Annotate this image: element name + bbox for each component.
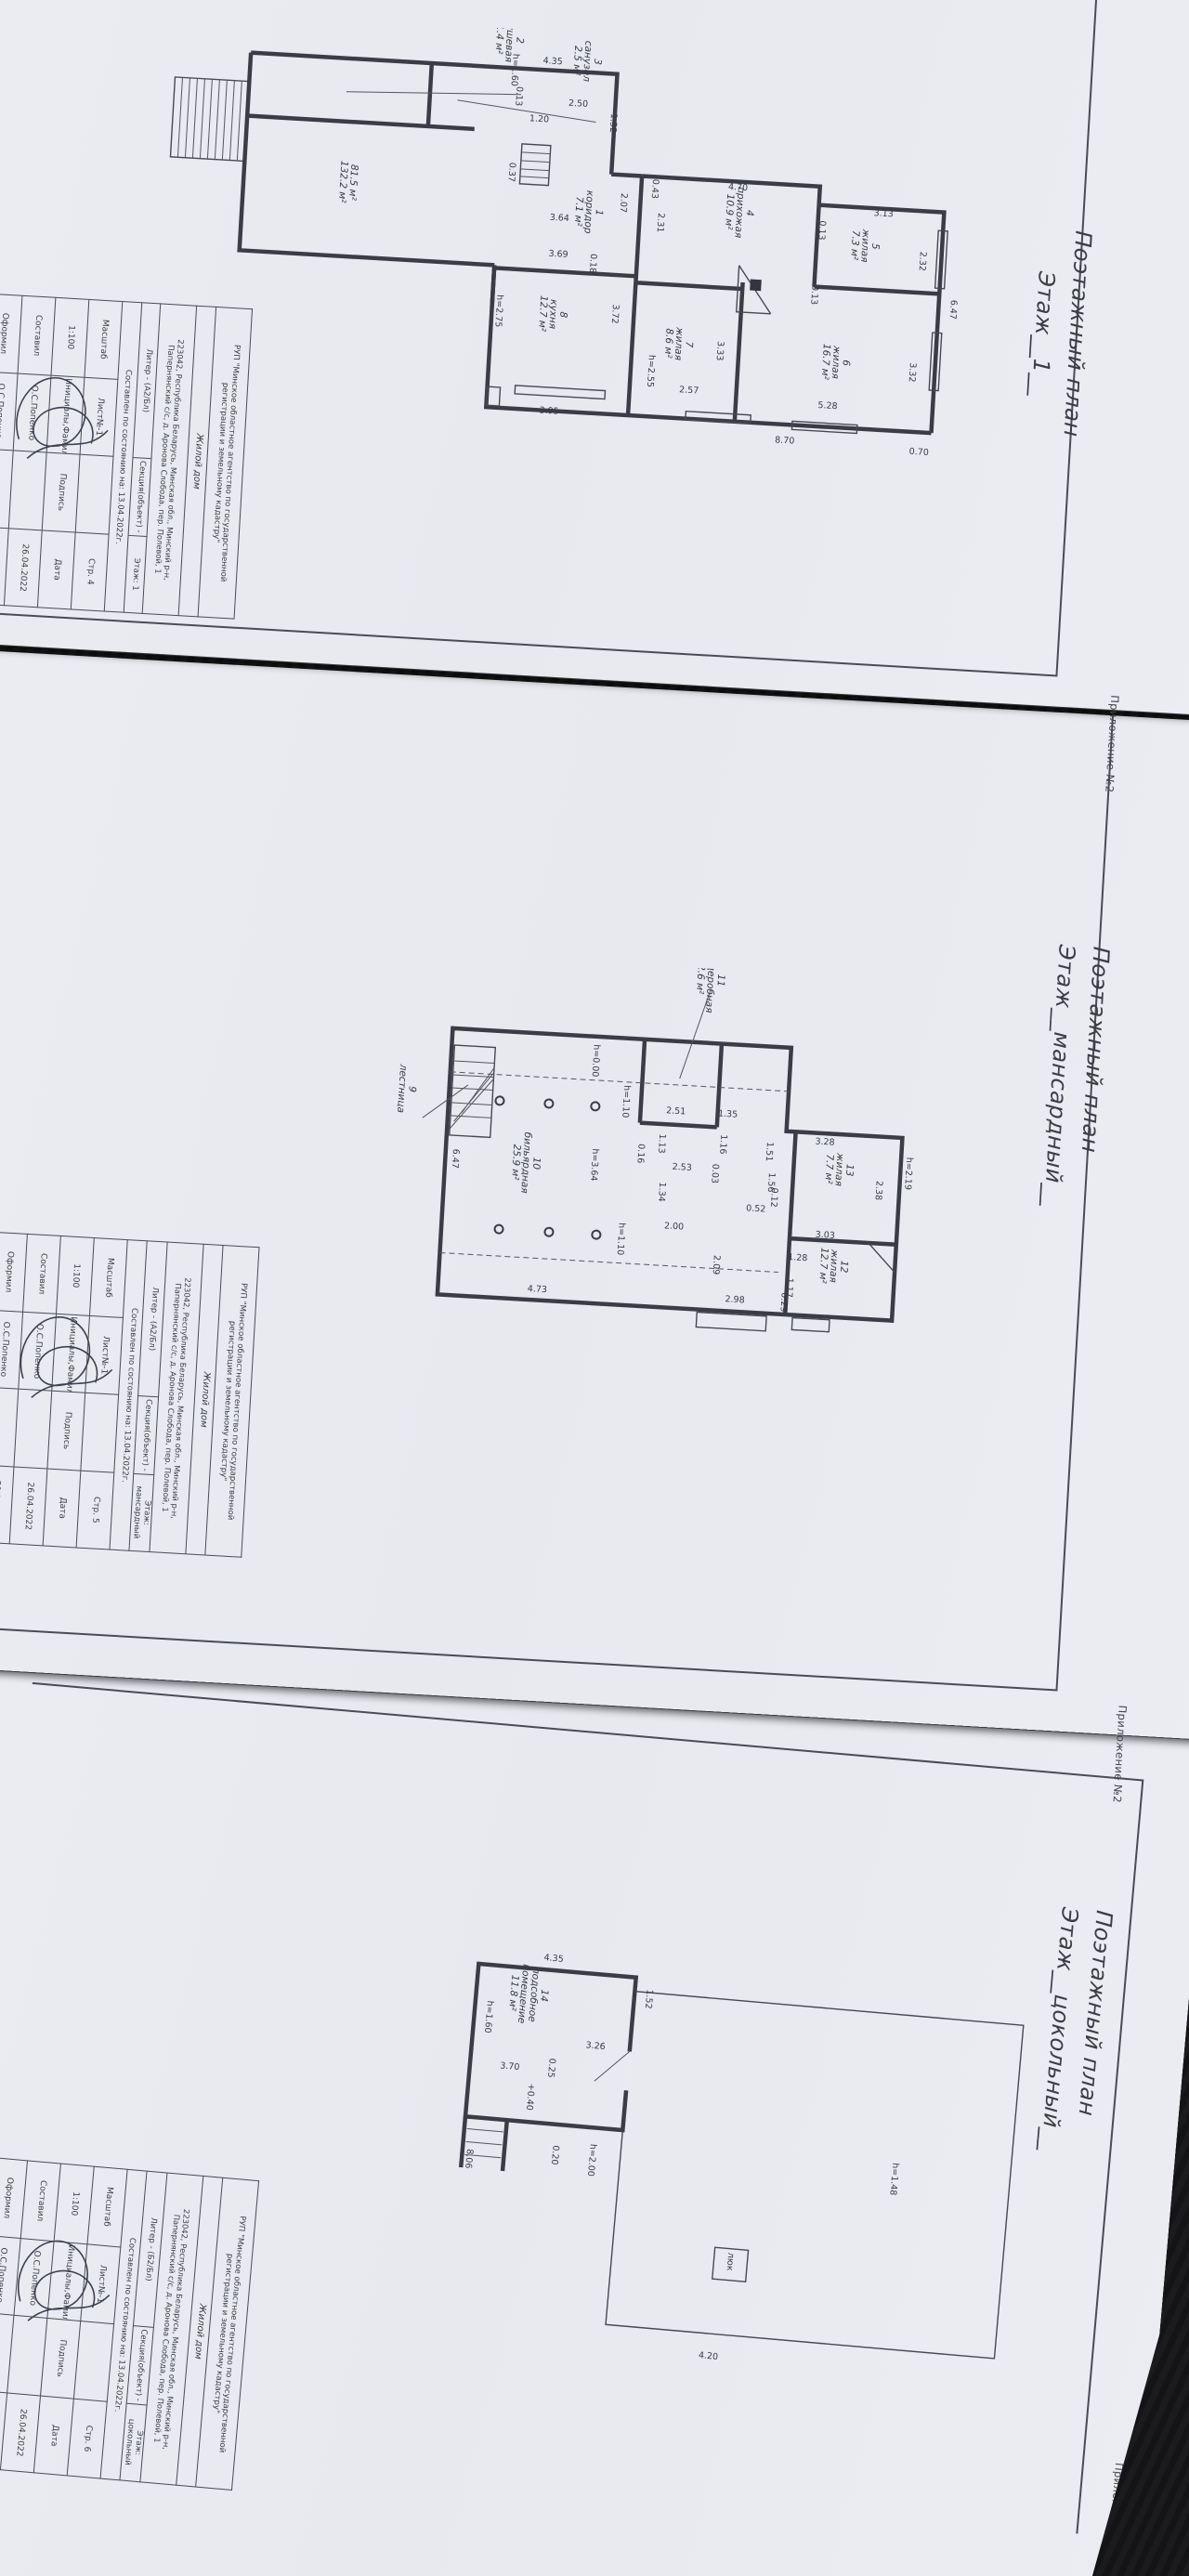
dimension-label: 0.20: [549, 2145, 561, 2165]
dimension-label: h=1.60: [509, 53, 521, 86]
compiled-on: 26.04.2022: [10, 1466, 48, 1545]
room-label: 11гардеробная2.6 м²: [693, 951, 728, 1014]
role-compiler: Составил: [23, 1234, 61, 1313]
col-name-header: Инициалы,Фамилия: [52, 1314, 90, 1393]
dimension-label: 8.06: [463, 2149, 475, 2169]
dimension-label: 2.09: [711, 1255, 722, 1275]
dimension-label: h=2.55: [645, 355, 657, 388]
role-drafter: Оформил: [0, 1232, 28, 1311]
dimension-label: 0.03: [709, 1163, 720, 1183]
title-block-table: РУП "Минское областное агентство по госу…: [0, 1232, 260, 1558]
title-block-table: РУП "Минское областное агентство по госу…: [0, 294, 253, 620]
role-compiler: Составил: [21, 2161, 61, 2241]
dimension-label: 6.47: [450, 1148, 461, 1169]
col-sign-header: Подпись: [41, 2318, 81, 2398]
room-label: 4прихожая10.9 м²: [722, 186, 756, 239]
dimension-label: 2.98: [725, 1294, 745, 1305]
page-title: Поэтажный план Этаж__1__: [1003, 227, 1100, 537]
dimension-label: 3.69: [548, 249, 568, 260]
floor-plan-1: 2душевая1.4 м²3санузел2.5 м²1коридор7.1 …: [139, 8, 981, 492]
page-title: Поэтажный план Этаж__мансардный__: [1010, 943, 1117, 1532]
dimension-label: 1.16: [717, 1134, 728, 1155]
dimension-label: 0.52: [746, 1203, 766, 1214]
dimension-label: 3.32: [907, 362, 918, 383]
room-label: 9лестница2.9 м²: [385, 1063, 419, 1114]
sheet-floor-1: Поэтажный план Этаж__1__ Приложение №2: [0, 0, 1189, 719]
dimension-label: 3.72: [609, 304, 621, 324]
floor-plan-basement: 14подсобноепомещение11.8 м²4.351.523.263…: [431, 1926, 1042, 2401]
dimension-label: 1.34: [656, 1182, 667, 1202]
dimension-label: h=1.60: [482, 2000, 495, 2033]
scale-value: 1:100: [57, 1236, 95, 1314]
dimension-label: h=2.75: [492, 294, 504, 328]
dimension-label: 3.70: [500, 2060, 520, 2073]
room-label: 8кухня12.7 м²: [536, 295, 569, 334]
dimension-label: 1.28: [788, 1252, 808, 1263]
dimension-label: h=2.19: [902, 1157, 914, 1191]
dimension-label: 6.47: [947, 299, 959, 320]
room-label: 3санузел2.5 м²: [570, 40, 605, 83]
dimension-label: 3.95: [539, 405, 559, 416]
scale-label: Масштаб: [90, 1238, 128, 1317]
col-sign-header: Подпись: [42, 452, 80, 531]
room-label: 1коридор7.1 м²: [571, 190, 606, 235]
dimension-label: 1.51: [764, 1142, 775, 1162]
dimension-label: 5.28: [817, 400, 838, 412]
col-date-header: Дата: [37, 530, 75, 608]
compiled-on: 26.04.2022: [4, 528, 42, 607]
floor-plan-mansard: 9лестница2.9 м²10бильярдная25.9 м²11гард…: [385, 951, 962, 1354]
sheet-floor-mansard: Поэтажный план Этаж__мансардный__ Прилож…: [0, 650, 1189, 1744]
dimension-label: 2.57: [679, 385, 699, 396]
dimension-label: 0.13: [513, 86, 524, 107]
col-date-header: Дата: [43, 1469, 81, 1548]
scale-value: 1:100: [51, 297, 89, 376]
dimension-label: 3.03: [815, 1230, 835, 1241]
appendix-label: Приложение №2: [1099, 2462, 1126, 2576]
dimension-label: 2.00: [664, 1221, 685, 1232]
col-name-header: Инициалы,Фамилия: [46, 375, 85, 454]
dimension-label: 2.51: [666, 1105, 686, 1117]
dimension-label: h=1.10: [620, 1085, 632, 1118]
dimension-label: 4.35: [542, 56, 563, 67]
dimension-label: 3.13: [873, 208, 894, 219]
sheet-number: Лист№-1: [81, 2243, 121, 2323]
dimension-label: 4.73: [528, 1284, 548, 1295]
col-name-header: Инициалы,Фамилия: [47, 2241, 87, 2321]
role-compiler: Составил: [18, 295, 56, 374]
room-label: 12жилая12.7 м²: [817, 1248, 850, 1287]
title-block-table: РУП "Минское областное агентство по госу…: [0, 2158, 259, 2491]
dimension-label: 2.53: [672, 1162, 692, 1173]
compiled-on: 26.04.2022: [1, 2392, 41, 2472]
dimension-label: 0.37: [506, 162, 517, 182]
dimension-label: 0.18: [587, 254, 598, 274]
compiler-name: О.С.Попенко: [13, 373, 51, 452]
scale-label: Масштаб: [87, 2166, 127, 2246]
room-label: 81.5 м²132.2 м²: [336, 161, 360, 205]
dimension-label: 4.35: [543, 1953, 564, 1965]
dimension-label: 0.13: [808, 285, 819, 306]
dimension-label: 2.32: [917, 251, 928, 271]
dimension-label: 2.50: [568, 98, 589, 110]
dimension-label: люк: [725, 2252, 737, 2271]
dimension-label: 3.28: [815, 1137, 835, 1148]
page-number: Стр. 5: [76, 1471, 114, 1550]
dimension-label: 0.43: [649, 178, 660, 199]
sheet-number: Лист№-1: [80, 377, 118, 456]
compiler-name: О.С.Попенко: [19, 1312, 57, 1391]
dimension-label: h=3.64: [588, 1148, 600, 1182]
dimension-label: h=2.00: [585, 2143, 598, 2177]
sheet-floor-basement: Поэтажный план Этаж__цокольный__ Приложе…: [0, 1626, 1189, 2576]
col-sign-header: Подпись: [47, 1391, 85, 1470]
dimension-label: 3.26: [585, 2040, 606, 2052]
page-number: Стр. 4: [71, 532, 109, 611]
dimension-label: +0.40: [524, 2083, 536, 2111]
room-label: 5жилая7.3 м²: [848, 228, 882, 264]
room-label: 6жилая16.7 м²: [819, 344, 853, 383]
col-date-header: Дата: [34, 2396, 74, 2476]
dimension-label: 4.70: [728, 182, 749, 193]
dimension-label: 3.64: [549, 213, 569, 224]
dimension-label: 4.20: [698, 2350, 718, 2362]
room-label: 10бильярдная25.9 м²: [508, 1131, 543, 1195]
room-label: 13жилая7.7 м²: [822, 1151, 856, 1187]
dimension-label: 0.29: [777, 1292, 789, 1313]
scale-value: 1:100: [54, 2164, 94, 2243]
dimension-label: 0.12: [768, 1187, 779, 1208]
dimension-label: 8.70: [775, 435, 795, 446]
dimension-label: h=1.10: [615, 1223, 627, 1256]
dimension-label: 1.52: [643, 1989, 655, 2009]
dimension-label: 1.52: [608, 113, 619, 134]
sheet-number: Лист№-1: [85, 1315, 124, 1394]
page-number: Стр. 6: [68, 2399, 108, 2478]
dimension-label: 0.16: [634, 1144, 646, 1164]
room-label: 14подсобноепомещение11.8 м²: [505, 1963, 552, 2026]
dimension-label: 0.25: [545, 2058, 557, 2078]
dimension-label: 0.13: [816, 220, 827, 241]
dimension-label: 2.31: [655, 213, 666, 233]
dimension-label: 3.33: [714, 341, 725, 361]
dimension-label: 2.38: [873, 1181, 884, 1201]
dimension-label: 1.13: [656, 1133, 667, 1154]
dimension-label: h=1.48: [887, 2163, 900, 2196]
dimension-label: 1.35: [718, 1108, 738, 1119]
dimension-label: 0.70: [908, 447, 929, 458]
dimension-label: h=0.00: [590, 1044, 602, 1078]
dimension-label: 2.07: [618, 192, 629, 213]
compiler-name: О.С.Попенко: [14, 2238, 54, 2318]
dimension-label: 1.20: [529, 113, 550, 124]
scale-label: Масштаб: [85, 299, 123, 378]
room-label: 7жилая8.6 м²: [662, 325, 696, 361]
photographed-document: Поэтажный план Этаж__1__ Приложение №2: [0, 0, 1189, 2576]
